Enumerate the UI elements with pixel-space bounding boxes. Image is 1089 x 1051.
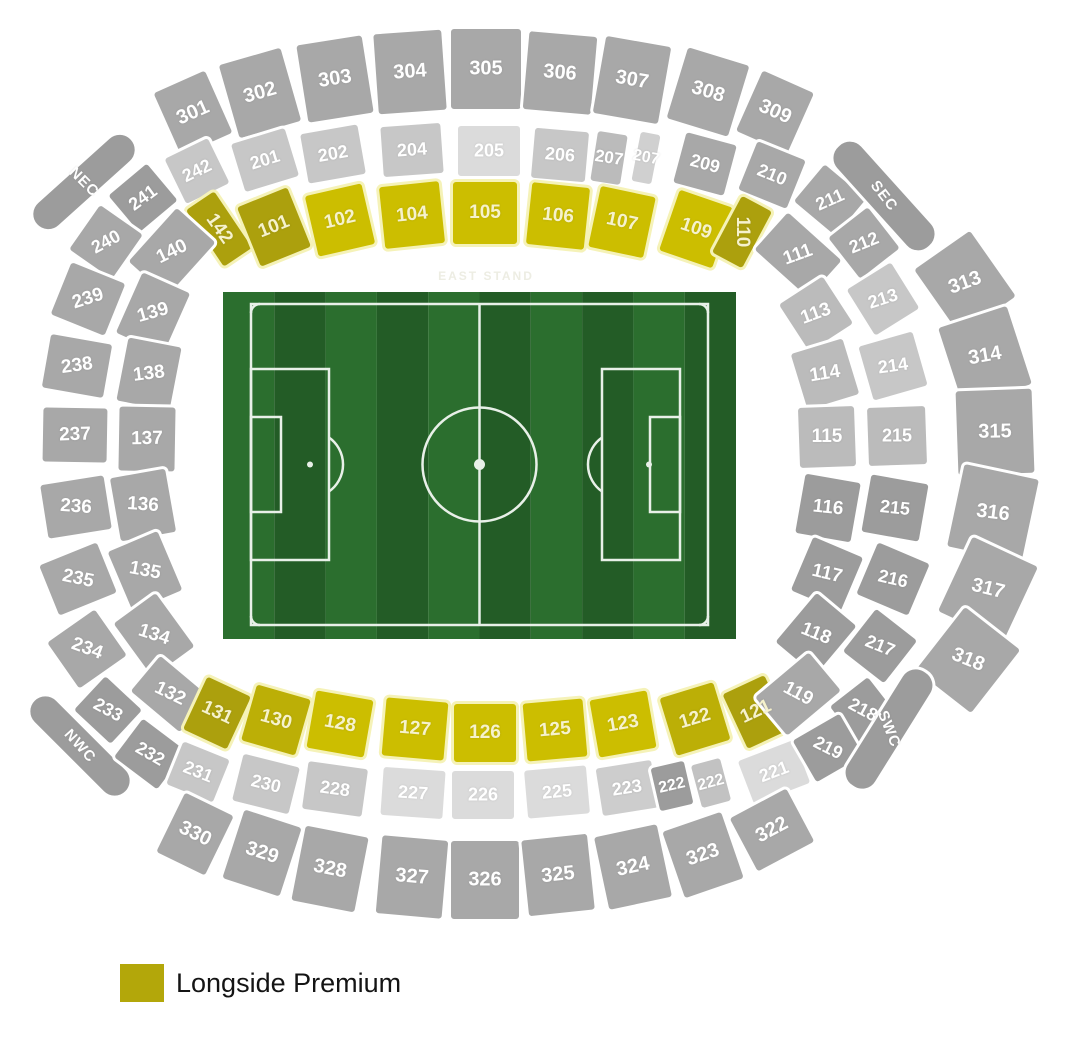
section-label-215-a: 215 — [882, 426, 912, 447]
section-label-305: 305 — [469, 58, 502, 81]
section-label-105: 105 — [469, 202, 501, 224]
section-label-316: 316 — [975, 500, 1011, 527]
section-label-205: 205 — [474, 141, 504, 162]
legend-label: Longside Premium — [176, 968, 401, 999]
section-label-204: 204 — [396, 138, 427, 161]
legend-swatch-longside-premium — [120, 964, 164, 1002]
section-label-126: 126 — [469, 722, 501, 744]
pitch-left-penalty-spot — [307, 462, 313, 468]
section-label-228: 228 — [319, 777, 352, 802]
section-label-327: 327 — [394, 864, 429, 890]
east-stand-label: EAST STAND — [438, 269, 534, 283]
section-label-138: 138 — [132, 361, 166, 387]
football-pitch — [223, 292, 736, 639]
section-label-115: 115 — [812, 426, 843, 448]
section-label-106: 106 — [541, 203, 575, 228]
section-label-104: 104 — [395, 202, 429, 227]
section-label-215-b: 215 — [879, 496, 911, 520]
section-label-136: 136 — [126, 493, 159, 517]
section-label-304: 304 — [393, 59, 428, 84]
section-label-137: 137 — [131, 428, 163, 451]
section-label-237: 237 — [59, 423, 91, 446]
section-label-125: 125 — [538, 718, 571, 743]
section-label-116: 116 — [812, 495, 845, 520]
section-label-214: 214 — [877, 354, 910, 379]
section-label-326: 326 — [468, 869, 501, 892]
section-label-227: 227 — [397, 781, 428, 804]
pitch-graphic — [223, 292, 736, 639]
stadium-seat-map: 3013023033043053063073083092422012022042… — [0, 0, 1089, 1051]
section-label-226: 226 — [468, 785, 498, 806]
section-label-127: 127 — [398, 717, 431, 742]
section-label-315: 315 — [978, 420, 1012, 444]
pitch-centre-spot — [474, 459, 485, 470]
section-label-110: 110 — [731, 217, 753, 248]
section-label-206: 206 — [544, 143, 576, 167]
section-label-207-a: 207 — [593, 146, 624, 170]
section-label-238: 238 — [60, 353, 94, 379]
legend: Longside Premium — [120, 964, 401, 1002]
pitch-right-penalty-spot — [646, 462, 652, 468]
section-label-306: 306 — [542, 60, 577, 86]
section-label-325: 325 — [540, 862, 576, 888]
section-label-236: 236 — [59, 495, 92, 519]
section-label-225: 225 — [541, 780, 573, 804]
